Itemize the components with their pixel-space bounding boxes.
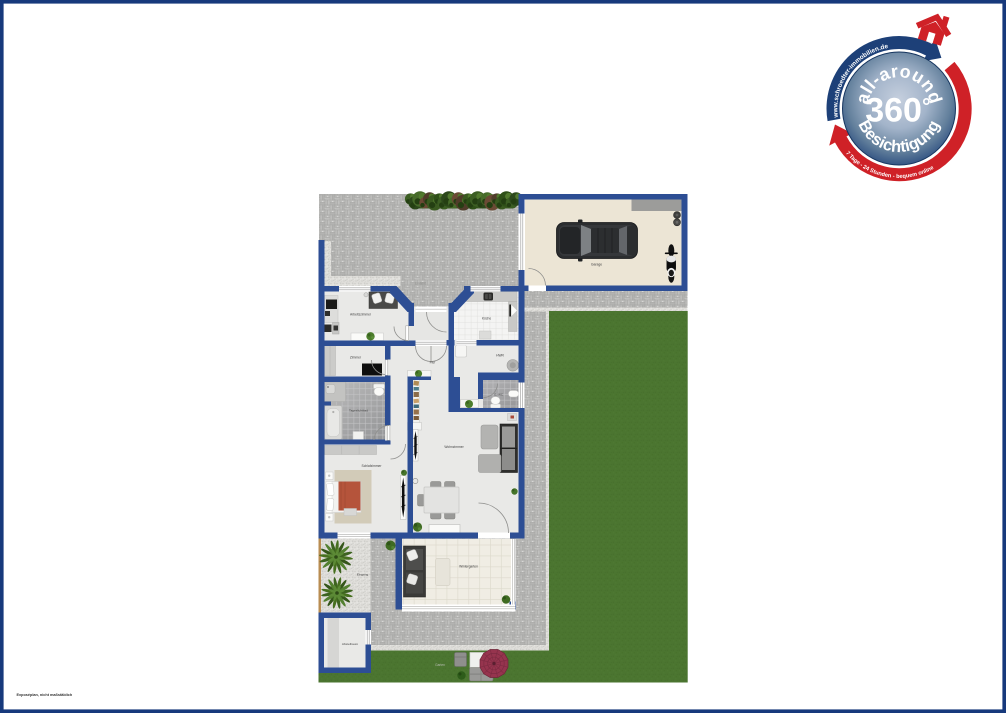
svg-text:Eingang: Eingang	[357, 573, 369, 577]
svg-text:Exposéplan, nicht maßstäblich: Exposéplan, nicht maßstäblich	[17, 693, 73, 697]
svg-text:Arbeitszimmer: Arbeitszimmer	[350, 312, 372, 316]
svg-text:Wohnzimmer: Wohnzimmer	[444, 445, 464, 449]
svg-text:Abstellraum: Abstellraum	[342, 642, 359, 646]
svg-text:Zimmer: Zimmer	[350, 355, 362, 359]
svg-text:Tageslichtbad: Tageslichtbad	[349, 409, 368, 413]
svg-text:G.-WC: G.-WC	[494, 393, 503, 397]
svg-text:Garten: Garten	[435, 663, 445, 667]
svg-text:Schlafzimmer: Schlafzimmer	[362, 464, 383, 468]
svg-text:360°: 360°	[865, 92, 931, 130]
svg-text:Wintergarten: Wintergarten	[459, 565, 478, 569]
svg-text:Einfahrt: Einfahrt	[415, 281, 426, 285]
svg-text:Garage: Garage	[591, 263, 602, 267]
svg-text:HWR: HWR	[496, 353, 504, 357]
svg-text:Küche: Küche	[482, 317, 492, 321]
svg-text:Flur: Flur	[430, 360, 437, 364]
